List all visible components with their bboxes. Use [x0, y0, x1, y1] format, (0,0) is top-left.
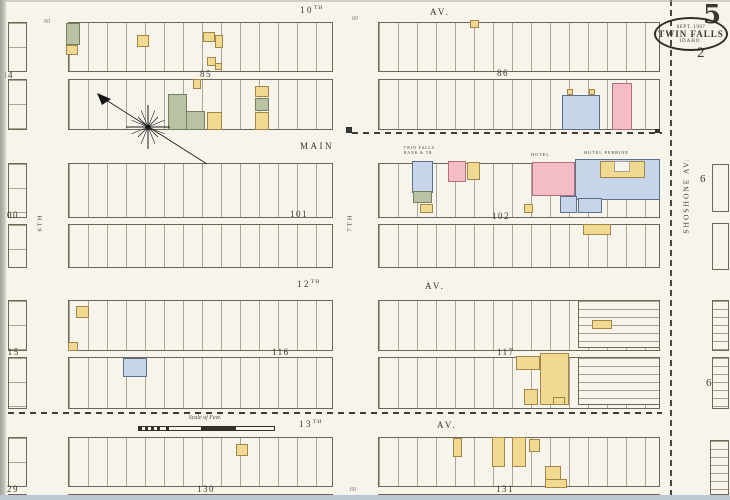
building: [470, 20, 479, 28]
scale-of-feet-label: Scale of Feet.: [150, 415, 260, 421]
street-label-13th: 13TH: [299, 419, 322, 429]
street-label-10th: 10TH: [300, 5, 323, 15]
compass-north-arrow: [97, 93, 111, 105]
hotel-label: HOTEL: [531, 152, 550, 157]
width-annotation-1: 60: [44, 19, 50, 25]
building: [545, 466, 561, 480]
block-101-lower-half: [68, 224, 333, 268]
building: [413, 191, 432, 203]
block-number-6-upper: 6: [700, 173, 707, 185]
stamp-state: IDAHO.: [679, 39, 702, 44]
street-label-10th-av: AV.: [430, 7, 450, 17]
block-129-upper-half: [8, 437, 27, 487]
block-6b-lower-half: [712, 357, 729, 409]
building: [137, 35, 149, 47]
scan-edge-top: [0, 0, 730, 2]
building: [346, 127, 352, 133]
building: [655, 129, 660, 133]
block-corner-partial: [710, 440, 729, 495]
block-116-lower-half: [68, 357, 333, 409]
sheet-boundary-dashed-line: [670, 0, 672, 500]
sanborn-map-sheet: 10TH AV. MAIN 12TH AV. 13TH AV. SHOSHONE…: [0, 0, 730, 500]
building: [524, 389, 538, 405]
block-130-upper-half: [68, 437, 333, 487]
block-115-upper-half: [8, 300, 27, 351]
width-annotation-2: 60: [352, 16, 358, 22]
block-number-85: 85: [200, 69, 212, 79]
street-label-13th-av: AV.: [437, 420, 457, 430]
street-label-12th-av: AV.: [425, 281, 445, 291]
building: [545, 479, 567, 488]
building: [614, 161, 630, 172]
block-85-upper-half: [68, 22, 333, 72]
building: [560, 196, 577, 213]
building: [123, 358, 147, 377]
building: [516, 356, 540, 370]
street-label-shoshone-av: SHOSHONE AV.: [682, 151, 691, 241]
street-label-7th: 7TH: [347, 208, 354, 232]
building: [592, 320, 612, 329]
building: [203, 32, 215, 42]
block-6-lower-half: [712, 223, 729, 270]
block-number-86: 86: [497, 68, 509, 78]
building: [255, 86, 269, 97]
building: [448, 161, 466, 182]
block-115-lower-half: [8, 357, 27, 409]
building: [453, 438, 462, 457]
compass-rose-icon: [95, 90, 220, 175]
building: [589, 89, 595, 95]
page-number: 2: [697, 45, 705, 62]
thirteenth-av-dashed-line: [8, 412, 662, 414]
building: [66, 45, 78, 55]
block-number-116: 116: [272, 347, 290, 357]
building: [562, 95, 600, 130]
street-label-6th: 6TH: [37, 208, 44, 232]
building: [567, 89, 573, 95]
building: [512, 437, 526, 467]
block-84-upper-half: [8, 22, 27, 72]
building: [215, 35, 223, 48]
building: [532, 162, 575, 196]
bank-label-line2: BANK & TR.: [400, 150, 438, 155]
building: [420, 204, 433, 213]
hotel-perrine-label: HOTEL PERRINE: [584, 150, 629, 155]
block-86-upper-half: [378, 22, 660, 72]
street-label-12th: 12TH: [297, 279, 320, 289]
block-84-lower-half: [8, 79, 27, 130]
block-number-130: 130: [197, 484, 215, 494]
building: [255, 112, 269, 130]
block-6-upper-half: [712, 164, 729, 212]
building: [66, 23, 80, 45]
building: [467, 162, 480, 180]
block-number-131: 131: [496, 484, 514, 494]
scale-bar: [138, 426, 275, 431]
building: [553, 397, 565, 405]
block-117-row-lots-upper: [578, 300, 660, 348]
building: [236, 444, 248, 456]
building: [529, 439, 540, 452]
width-annotation-3: 60: [350, 487, 356, 493]
building: [524, 204, 533, 213]
scan-edge-bottom: [0, 495, 730, 500]
building: [255, 98, 269, 111]
block-102-lower-half: [378, 224, 660, 268]
block-number-101: 101: [290, 209, 308, 219]
building: [68, 342, 78, 351]
building: [215, 63, 222, 70]
stamp-city: TWIN FALLS: [658, 30, 724, 39]
building: [193, 79, 201, 89]
block-100-lower-half: [8, 224, 27, 268]
main-street-dashed-line: [352, 132, 662, 134]
block-number-6-lower: 6: [706, 377, 713, 389]
street-label-main: MAIN: [300, 141, 334, 151]
block-number-102: 102: [492, 211, 510, 221]
block-number-117: 117: [497, 347, 515, 357]
block-116-upper-half: [68, 300, 333, 351]
building: [583, 224, 611, 235]
block-6b-upper-half: [712, 300, 729, 351]
building: [76, 306, 89, 318]
building: [492, 437, 505, 467]
building: [612, 83, 632, 130]
block-117-row-lots-lower: [578, 357, 660, 405]
building: [412, 161, 433, 193]
scan-edge-left: [0, 0, 7, 500]
building: [578, 198, 602, 213]
publisher-stamp: SEPT. 1907 TWIN FALLS IDAHO.: [654, 17, 728, 51]
